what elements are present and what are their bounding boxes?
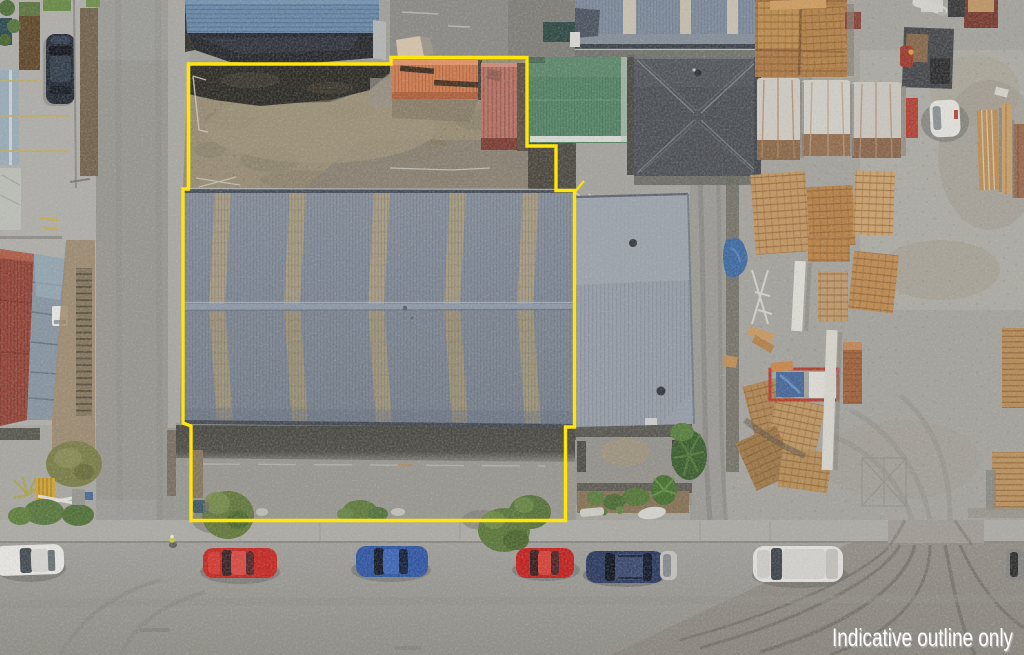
svg-text:Indicative outline only: Indicative outline only <box>832 624 1013 652</box>
